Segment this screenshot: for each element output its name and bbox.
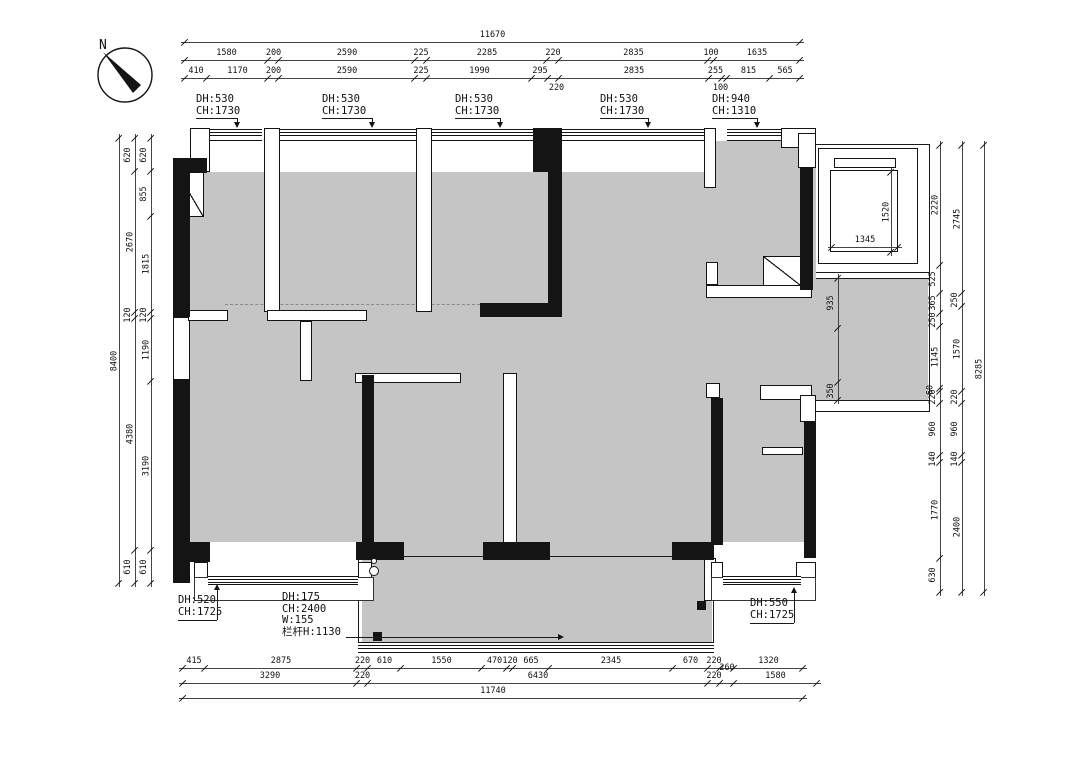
- dim-label: 4380: [127, 424, 136, 444]
- dimension-line: [181, 78, 804, 79]
- dim-label: 220: [549, 84, 564, 93]
- dim-label: 120: [124, 307, 133, 322]
- dimension-line: [838, 274, 839, 404]
- wall-segment: [706, 285, 812, 298]
- dim-label: 3290: [260, 672, 280, 681]
- boundary-line: [816, 278, 930, 279]
- dim-label: 365: [929, 295, 938, 310]
- dim-label: 140: [929, 451, 938, 466]
- drain-circle: [369, 566, 379, 576]
- dim-label: 225: [413, 67, 428, 76]
- dim-label: 2835: [623, 49, 643, 58]
- wall-segment: [706, 383, 720, 398]
- dim-label: 1580: [765, 672, 785, 681]
- leader-arrow-icon: [214, 584, 220, 590]
- balcony-railing-label: DH:175 CH:2400 W:155 栏杆H:1130: [282, 592, 341, 638]
- wall-segment: [356, 542, 404, 560]
- dim-label: 250: [929, 312, 938, 327]
- wall-segment: [798, 133, 816, 168]
- dim-label: 120: [140, 307, 149, 322]
- dim-label: 1145: [932, 347, 941, 367]
- dim-label: 200: [266, 67, 281, 76]
- window-head-label: DH:530 CH:1730: [600, 94, 644, 117]
- bath-fixture: [763, 256, 801, 286]
- dim-label: 620: [140, 147, 149, 162]
- dim-label: 1580: [216, 49, 236, 58]
- leader-line: [346, 637, 558, 638]
- dim-label: 610: [124, 559, 133, 574]
- dim-label: 100: [703, 49, 718, 58]
- wall-segment: [416, 128, 432, 312]
- wall-segment: [672, 542, 714, 560]
- dim-label: 565: [777, 67, 792, 76]
- dimension-line: [179, 683, 821, 684]
- dim-label: 2670: [127, 231, 136, 251]
- wall-segment: [711, 398, 723, 545]
- dimension-line: [151, 134, 152, 587]
- dim-label: 1320: [758, 657, 778, 666]
- dim-label: 2285: [477, 49, 497, 58]
- wall-segment: [480, 303, 562, 317]
- dim-label: 6430: [528, 672, 548, 681]
- dimension-line: [828, 247, 902, 248]
- dimension-line: [179, 698, 807, 699]
- dim-label: 250: [951, 292, 960, 307]
- floor-area: [800, 300, 816, 385]
- dim-label: 11740: [480, 687, 506, 696]
- dim-label: 220: [951, 389, 960, 404]
- wall-segment: [267, 310, 367, 321]
- dim-label: 255: [708, 67, 723, 76]
- dim-label: 610: [377, 657, 392, 666]
- leader-arrow-icon: [369, 122, 375, 128]
- dim-label: 960: [929, 421, 938, 436]
- dimension-line: [181, 42, 804, 43]
- dim-label: 415: [186, 657, 201, 666]
- boundary-line: [816, 272, 930, 273]
- leader-line: [712, 118, 757, 119]
- dim-label: 1815: [143, 254, 152, 274]
- boundary-line: [816, 400, 930, 401]
- wall-segment: [173, 317, 190, 380]
- dim-label: 855: [140, 186, 149, 201]
- dim-label: 2220: [932, 195, 941, 215]
- leader-arrow-icon: [234, 122, 240, 128]
- leader-line: [196, 118, 237, 119]
- wall-segment: [194, 562, 208, 578]
- wall-segment: [711, 562, 723, 578]
- dim-label: 1520: [883, 202, 892, 222]
- leader-line: [322, 118, 372, 119]
- wall-segment: [264, 128, 280, 312]
- dimension-line: [135, 134, 136, 587]
- window: [280, 129, 416, 141]
- leader-arrow-icon: [645, 122, 651, 128]
- dim-label: 2745: [954, 209, 963, 229]
- dim-label: 220: [355, 672, 370, 681]
- wall-segment: [503, 373, 517, 543]
- dim-label: 260: [719, 664, 734, 673]
- dim-label: 220: [355, 657, 370, 666]
- dim-label: 665: [523, 657, 538, 666]
- window: [723, 576, 801, 585]
- dim-label: 1345: [855, 236, 875, 245]
- dim-label: 295: [532, 67, 547, 76]
- dim-label: 815: [741, 67, 756, 76]
- leader-line: [600, 118, 648, 119]
- dim-label: 120: [502, 657, 517, 666]
- dim-label: 3190: [143, 455, 152, 475]
- dim-label: 2345: [601, 657, 621, 666]
- wall-segment: [804, 422, 816, 558]
- window-head-label: DH:940 CH:1310: [712, 94, 756, 117]
- leader-line: [217, 589, 218, 620]
- drain-circle: [371, 558, 377, 564]
- dim-label: 2590: [337, 49, 357, 58]
- wall-segment: [483, 542, 550, 560]
- window: [562, 129, 704, 141]
- elevator-door: [834, 158, 896, 168]
- dim-label: 470: [487, 657, 502, 666]
- window: [727, 129, 781, 141]
- dim-label: 220: [706, 672, 721, 681]
- dim-label: 140: [951, 451, 960, 466]
- wall-segment: [706, 262, 718, 285]
- dim-label: 200: [266, 49, 281, 58]
- dim-label: 8285: [976, 358, 985, 378]
- wall-segment: [188, 310, 228, 321]
- leader-line: [794, 592, 795, 623]
- dim-label: 2400: [954, 517, 963, 537]
- dim-label: 1990: [469, 67, 489, 76]
- wall-segment: [800, 395, 816, 422]
- leader-line: [455, 118, 500, 119]
- dim-label: 1770: [932, 500, 941, 520]
- dim-label: 220: [545, 49, 560, 58]
- dim-label: 1170: [227, 67, 247, 76]
- wall-segment: [173, 158, 190, 317]
- window: [358, 642, 714, 653]
- dimension-line: [179, 668, 807, 669]
- window: [432, 129, 533, 141]
- wall-segment: [300, 321, 312, 381]
- window-head-label: DH:520 CH:1725: [178, 595, 222, 618]
- dim-label: 620: [124, 147, 133, 162]
- dim-label: 2835: [624, 67, 644, 76]
- window-head-label: DH:550 CH:1725: [750, 598, 794, 621]
- leader-arrow-icon: [497, 122, 503, 128]
- dim-label: 2590: [337, 67, 357, 76]
- dim-label: 1550: [431, 657, 451, 666]
- dim-label: 630: [929, 567, 938, 582]
- dim-label: 670: [683, 657, 698, 666]
- dim-label: 935: [827, 295, 836, 310]
- window: [208, 576, 358, 585]
- column-marker: [697, 601, 706, 610]
- window-head-label: DH:530 CH:1730: [322, 94, 366, 117]
- window: [210, 129, 262, 141]
- dim-label: 11670: [480, 31, 506, 40]
- boundary-line: [816, 144, 930, 145]
- dim-label: 220: [929, 389, 938, 404]
- dim-label: 525: [929, 271, 938, 286]
- leader-arrow-icon: [791, 587, 797, 593]
- dim-label: 610: [140, 559, 149, 574]
- dim-label: 2875: [271, 657, 291, 666]
- wall-segment: [704, 128, 716, 188]
- window-head-label: DH:530 CH:1730: [455, 94, 499, 117]
- floor-plan-canvas: N 11670158020025902252285220283510016354…: [0, 0, 1080, 763]
- leader-line: [750, 623, 794, 624]
- dim-label: 350: [827, 383, 836, 398]
- dim-label: 1635: [747, 49, 767, 58]
- wall-segment: [548, 172, 562, 317]
- leader-arrow-icon: [558, 634, 564, 640]
- dim-label: 8400: [111, 350, 120, 370]
- wall-segment: [533, 128, 562, 172]
- dim-label: 1570: [954, 338, 963, 358]
- wall-segment: [362, 375, 374, 542]
- window-head-label: DH:530 CH:1730: [196, 94, 240, 117]
- wall-segment: [800, 168, 813, 290]
- dim-label: 960: [951, 421, 960, 436]
- floor-area: [362, 558, 712, 646]
- dim-label: 225: [413, 49, 428, 58]
- dim-label: 1190: [143, 339, 152, 359]
- north-label: N: [99, 40, 107, 52]
- leader-line: [178, 620, 217, 621]
- wall-segment: [173, 542, 210, 562]
- boundary-line: [816, 411, 930, 412]
- dim-label: 410: [188, 67, 203, 76]
- wall-segment: [762, 447, 803, 455]
- dim-label: 100: [713, 84, 728, 93]
- leader-arrow-icon: [754, 122, 760, 128]
